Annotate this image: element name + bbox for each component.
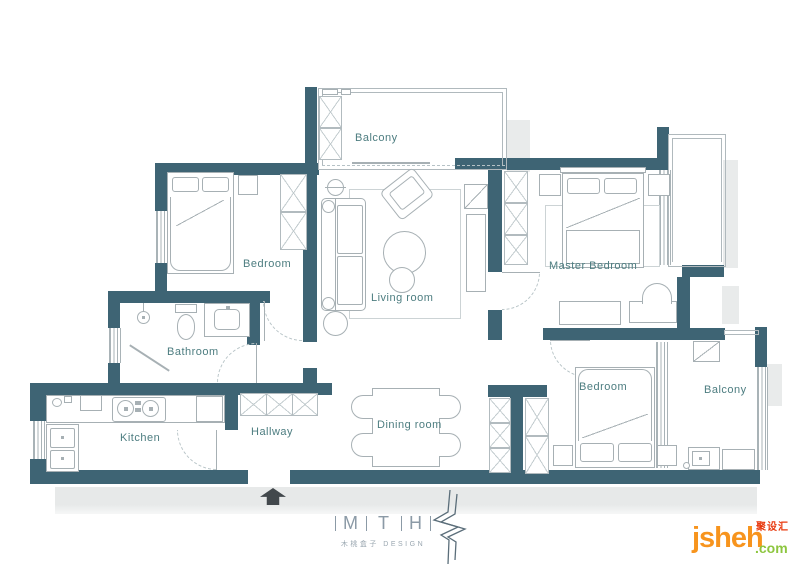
wall-segment	[108, 291, 270, 303]
logo-bar	[401, 516, 402, 531]
wall-segment	[677, 277, 690, 340]
pillow	[202, 177, 229, 192]
balcony-vent	[322, 89, 338, 95]
sofa-cushion	[337, 256, 363, 305]
site-watermark: jsheh 聚设汇 .com	[692, 523, 800, 563]
stove-grill	[135, 408, 141, 412]
washing-machine	[693, 341, 720, 362]
sofa-back-line	[335, 199, 336, 310]
logo-bar	[335, 516, 336, 531]
fridge	[196, 396, 223, 422]
wall-segment	[30, 470, 248, 484]
sink-dot	[61, 457, 64, 460]
pillow	[580, 443, 614, 462]
sliding-door-balcony	[322, 165, 505, 166]
balcony-vent	[341, 89, 351, 95]
logo-letter-t: T	[378, 513, 390, 534]
counter-box	[80, 395, 102, 411]
logo-letter-h: H	[409, 513, 423, 534]
bench	[559, 301, 621, 325]
wardrobe-cell	[280, 212, 307, 250]
shower-glass	[129, 344, 170, 371]
blanket-fold	[566, 198, 640, 228]
wash-basin	[214, 309, 240, 330]
shadow-balcony-right	[766, 364, 782, 406]
wardrobe-cell	[504, 235, 528, 265]
shadow-bay-lower	[722, 286, 739, 324]
toilet-tank	[175, 304, 197, 313]
window	[109, 328, 121, 363]
watermark-brand: jsheh	[692, 524, 763, 553]
blanket-fold	[176, 200, 224, 226]
bed-foot-band	[566, 230, 640, 264]
wardrobe-cell	[280, 174, 307, 212]
shadow-bottom-band	[55, 487, 757, 514]
small-appliance	[64, 396, 72, 403]
shower-head-dot	[142, 316, 145, 319]
watermark-tld: .com	[755, 541, 788, 555]
cabinet-diagonal	[464, 184, 488, 209]
door-leaf	[264, 301, 265, 341]
ceiling-lamp-cross	[325, 187, 346, 188]
logo-letter-m: M	[343, 513, 359, 534]
blanket-fold	[582, 414, 648, 438]
logo-letters: M T H	[335, 513, 431, 534]
wall-segment	[108, 291, 120, 328]
door-leaf	[550, 340, 590, 341]
nightstand	[657, 445, 677, 466]
wardrobe-cell	[525, 436, 549, 474]
dining-cabinet-cell	[489, 448, 511, 473]
nightstand	[539, 174, 561, 196]
floor-plan-canvas: Balcony Bedroom Living room Master Bedro…	[0, 0, 800, 565]
railing-balcony-right-top	[724, 330, 759, 335]
pouf	[323, 311, 348, 336]
faucet-dot	[226, 306, 230, 309]
room-label-bedroom-left: Bedroom	[243, 259, 291, 270]
pillow	[618, 443, 652, 462]
door-arc-master	[502, 272, 540, 310]
nightstand	[238, 175, 258, 195]
sofa-arm	[322, 297, 335, 310]
wardrobe-cell	[525, 398, 549, 436]
dresser	[629, 301, 677, 323]
room-label-kitchen: Kitchen	[120, 433, 160, 444]
wall-segment	[488, 385, 547, 397]
laundry-dot	[699, 457, 702, 460]
logo-bar	[366, 516, 367, 531]
hallway-cabinet-cell	[292, 393, 318, 416]
door-arc-kitchen	[177, 430, 217, 470]
room-label-bedroom-right: Bedroom	[579, 382, 627, 393]
hallway-cabinet-cell	[266, 393, 293, 416]
pillow	[172, 177, 199, 192]
hallway-cabinet-cell	[240, 393, 267, 416]
kitchen-faucet	[52, 398, 62, 407]
dining-cabinet-cell	[489, 398, 511, 423]
wardrobe-cell	[504, 203, 528, 235]
floor-drain	[683, 462, 690, 469]
pillow	[567, 178, 600, 194]
wall-segment	[305, 87, 317, 175]
dining-chair	[351, 433, 373, 457]
bay-window-master-inner	[672, 138, 722, 262]
room-label-dining-room: Dining room	[377, 420, 442, 431]
sofa-cushion	[337, 205, 363, 254]
room-label-living-room: Living room	[371, 293, 433, 304]
tv-cabinet	[466, 214, 486, 292]
wall-segment	[30, 383, 46, 421]
closet-cell	[319, 128, 342, 160]
window	[33, 421, 45, 459]
balcony-counter	[722, 449, 755, 470]
logo-bar	[430, 516, 431, 531]
sliding-door-leaf	[352, 162, 430, 164]
stove-grill	[135, 401, 141, 405]
door-leaf	[216, 430, 217, 470]
room-label-balcony-top: Balcony	[355, 133, 398, 144]
door-arc-bathroom	[217, 343, 257, 383]
railing-balcony-top-inner	[322, 92, 503, 165]
door-leaf	[256, 343, 257, 383]
wall-segment	[155, 263, 167, 303]
room-label-balcony-right: Balcony	[704, 385, 747, 396]
dining-chair	[439, 395, 461, 419]
wardrobe-cell	[504, 171, 528, 203]
nightstand	[553, 445, 573, 466]
wall-segment	[510, 397, 523, 473]
wall-segment	[543, 328, 725, 340]
wall-segment	[488, 167, 502, 272]
closet-cell	[319, 96, 342, 128]
door-leaf	[502, 272, 540, 273]
railing-balcony-right	[757, 367, 768, 470]
wall-segment	[155, 163, 167, 211]
dining-cabinet-cell	[489, 423, 511, 448]
sofa-arm	[322, 200, 335, 213]
pillow	[604, 178, 637, 194]
door-arc-bedroom-left	[263, 301, 303, 341]
logo-subtitle: 木桃盒子 DESIGN	[341, 539, 425, 549]
room-label-hallway: Hallway	[251, 427, 293, 438]
stool-handle	[642, 283, 672, 304]
toilet-bowl	[177, 314, 195, 340]
room-label-bathroom: Bathroom	[167, 347, 219, 358]
watermark-cn-tag: 聚设汇	[756, 523, 789, 533]
sink-dot	[61, 436, 64, 439]
burner-dot	[124, 407, 128, 411]
wall-segment	[225, 395, 238, 430]
wall-segment	[488, 310, 502, 340]
shower-arm	[143, 303, 144, 312]
dining-chair	[439, 433, 461, 457]
dining-chair	[351, 395, 373, 419]
burner-dot	[149, 407, 153, 411]
side-table	[389, 267, 415, 293]
room-label-master-bedroom: Master Bedroom	[549, 261, 637, 272]
nightstand	[648, 174, 670, 196]
design-studio-logo: M T H 木桃盒子 DESIGN	[330, 513, 436, 549]
